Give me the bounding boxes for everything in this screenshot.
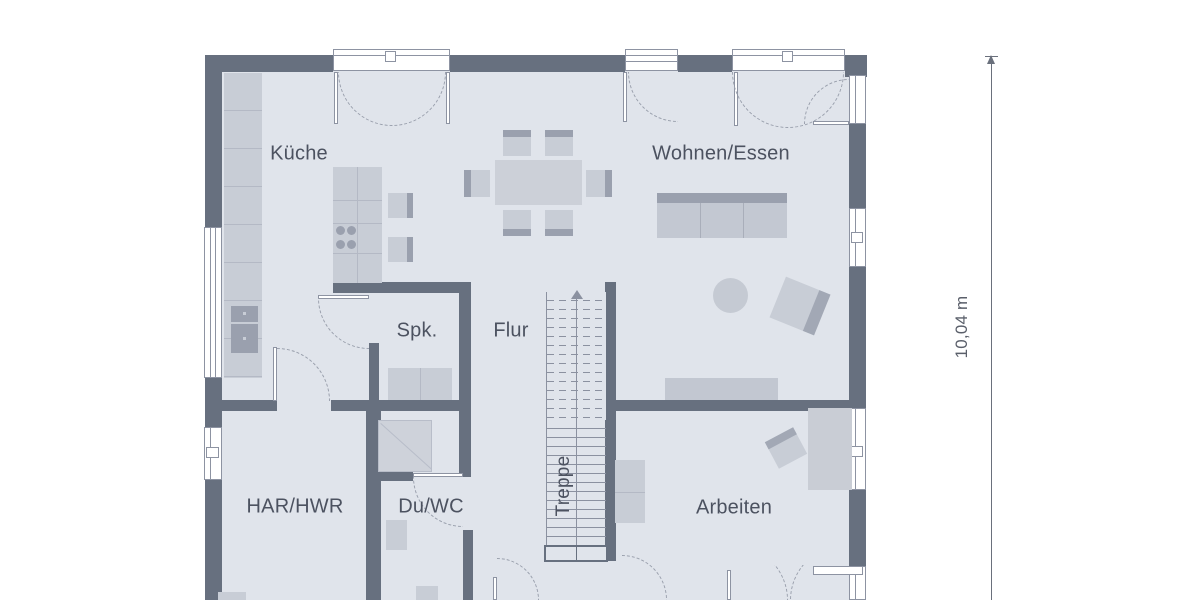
door-swing-arc-office (622, 555, 667, 600)
door-swing-arc (392, 72, 446, 126)
door-leaf (446, 72, 450, 124)
wall-top (205, 55, 333, 72)
wall-right (849, 490, 866, 566)
room-label-du-wc: Du/WC (398, 496, 463, 519)
room-label-wohnen-essen: Wohnen/Essen (652, 143, 790, 166)
door-swing-arc-utility (277, 348, 330, 401)
kitchen-island (333, 167, 382, 283)
toilet (416, 586, 438, 600)
door-leaf (623, 72, 627, 122)
wall-right (849, 122, 866, 208)
dining-chair (545, 210, 573, 236)
room-label-kueche: Küche (270, 143, 328, 166)
door-swing-arc-bottom-right (733, 565, 788, 600)
dining-table (495, 160, 582, 205)
wall-left (205, 55, 222, 227)
wall-utility-top (331, 400, 471, 411)
window-kitchen-left (204, 227, 222, 378)
terrace-door-window (625, 49, 678, 71)
door-frame-office (727, 570, 731, 600)
door-swing-arc-pantry (318, 298, 369, 349)
dimension-arrow-icon (987, 55, 995, 64)
wall-kitchen-pantry (333, 282, 471, 293)
wall-left (205, 480, 222, 600)
wall-pantry-left (369, 343, 379, 401)
bar-stool (388, 237, 413, 262)
kitchen-sink (231, 306, 258, 322)
cooktop-burner (347, 226, 356, 235)
wall-pantry-right (459, 282, 471, 412)
wall-top (678, 55, 732, 72)
bath-sink (386, 520, 407, 550)
door-swing-arc (338, 72, 392, 126)
shower (378, 420, 432, 472)
door-swing-arc (628, 72, 678, 122)
window-mullion-marker (782, 51, 793, 62)
window-mullion-marker (851, 232, 863, 243)
pantry-shelf (388, 368, 452, 400)
utility-appliance (218, 592, 246, 600)
dining-chair (503, 210, 531, 236)
room-label-flur: Flur (493, 320, 528, 343)
round-rug (713, 278, 748, 313)
window-mullion-marker (851, 446, 863, 457)
dimension-line (991, 57, 992, 600)
window-mullion-marker (385, 51, 396, 62)
door-swing-arc (732, 72, 788, 128)
stair-up-arrow-icon (571, 290, 583, 299)
wall-top (450, 55, 625, 72)
wall-bath-hall-upper (459, 411, 471, 477)
wall-utility-top (222, 400, 277, 411)
room-label-treppe: Treppe (553, 456, 575, 517)
sofa (657, 193, 787, 238)
room-label-arbeiten: Arbeiten (696, 497, 772, 520)
wall-bath-entry (381, 472, 413, 481)
kitchen-oven (231, 324, 258, 353)
floorplan-canvas: Küche Wohnen/Essen Spk. Flur Treppe HAR/… (0, 0, 1200, 600)
room-label-har-hwr: HAR/HWR (247, 496, 344, 519)
window-corner-right (849, 75, 866, 124)
door-swing-arc-bottom-right (790, 565, 845, 600)
sideboard (665, 378, 778, 400)
cooktop-burner (347, 240, 356, 249)
dining-chair (464, 170, 490, 197)
door-swing-arc-corner (804, 79, 849, 124)
dimension-label: 10,04 m (952, 296, 972, 359)
cabinet-stair-foot (544, 545, 608, 562)
dining-chair (503, 130, 531, 156)
wall-right (849, 267, 866, 410)
door-swing-arc-hall-bottom (497, 558, 539, 600)
cooktop-burner (336, 226, 345, 235)
wall-left (205, 378, 222, 427)
stair-direction-line (576, 296, 577, 558)
wall-top-right-corner (845, 55, 867, 77)
office-shelf (808, 408, 852, 490)
dining-chair (586, 170, 612, 197)
wall-bath-hall-lower (463, 530, 473, 600)
dining-chair (545, 130, 573, 156)
window-mullion-marker (206, 447, 219, 458)
desk (615, 460, 645, 523)
room-label-spk: Spk. (397, 320, 438, 343)
cooktop-burner (336, 240, 345, 249)
bar-stool (388, 193, 413, 218)
